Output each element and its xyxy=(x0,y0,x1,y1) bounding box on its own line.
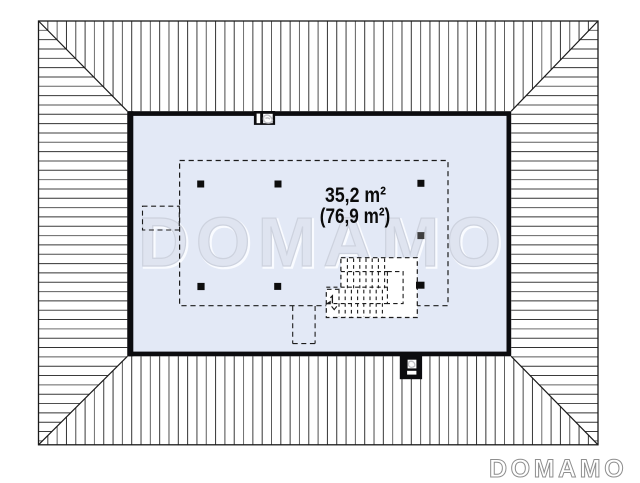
svg-text:DOMAMO: DOMAMO xyxy=(489,455,627,483)
svg-text:(76,9 m²): (76,9 m²) xyxy=(320,204,391,228)
